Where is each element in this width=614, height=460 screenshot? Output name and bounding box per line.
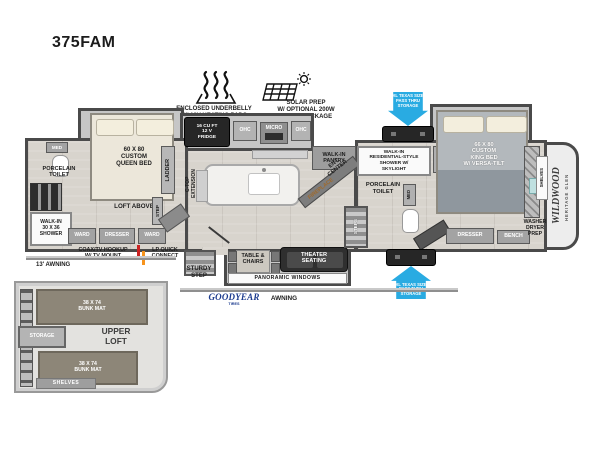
pillow [136, 119, 174, 136]
upper-loft-label: UPPER LOFT [86, 327, 146, 346]
table-chairs-label: TABLE & CHAIRS [236, 253, 270, 265]
countertop-extension [196, 170, 208, 202]
ctop-extension-label: C-TOP EXTENSION [186, 156, 198, 212]
bedroom-steps: STEPS [344, 206, 368, 248]
latch [420, 132, 425, 136]
goodyear-tires-label: TIRES [222, 302, 246, 306]
front-wardrobe [30, 183, 62, 211]
loft-ladder: LADDER [161, 146, 175, 194]
washer-dryer-prep-label: WASHER DRYER PREP [516, 220, 554, 238]
microwave: MICRO [260, 122, 288, 144]
sink [248, 173, 280, 195]
faucet-icon [262, 168, 266, 172]
front-med-cabinet: MED [46, 142, 68, 153]
pillow [486, 116, 527, 133]
pass-thru-arrow-top: XL TEXAS SIZE PASS THRU STORAGE [388, 92, 428, 126]
latch [422, 255, 427, 259]
microwave-door [265, 133, 283, 140]
heating-pads-icon [194, 70, 238, 109]
loft-storage: STORAGE [18, 326, 66, 348]
pass-thru-door-bottom [386, 249, 436, 266]
theater-seating-label: THEATER SEATING [282, 252, 346, 265]
ohc-left: OHC [233, 121, 257, 141]
brand-subtitle: HERITAGE GLEN [565, 158, 570, 236]
rear-toilet-icon [402, 209, 419, 233]
page-title: 375FAM [52, 34, 115, 52]
refrigerator: 16 CU FT 12 V FRIDGE [184, 117, 230, 147]
rear-med-cabinet: MED [403, 184, 416, 206]
rear-shower: WALK-IN RESIDENTIAL-STYLE SHOWER W/ SKYL… [357, 146, 431, 176]
kitchen-counter [252, 150, 308, 159]
bed-foot [438, 170, 526, 212]
king-bed-label: 66 X 80 CUSTOM KING BED W/ VERSA-TILT [438, 142, 530, 168]
pillow [96, 119, 134, 136]
pillow [443, 116, 484, 133]
upper-loft-inset: 38 X 74 BUNK MAT STORAGE UPPER LOFT 38 X… [14, 281, 168, 393]
brand-wordmark: WILDWOOD [551, 150, 563, 242]
kitchen-island [204, 164, 300, 206]
sturdy-step-label: STURDY STEP [176, 266, 222, 280]
goodyear-logo: GOODYEAR [206, 292, 262, 302]
latch [395, 255, 400, 259]
pass-thru-arrow-bottom: XL TEXAS SIZE PASS THRU STORAGE [391, 266, 431, 299]
ward-right: WARD [138, 228, 166, 244]
panoramic-windows: PANORAMIC WINDOWS [228, 273, 347, 284]
chair [271, 251, 280, 262]
rear-shelves: SHELVES [536, 156, 548, 200]
ward-left: WARD [68, 228, 96, 244]
floorplan-diagram: 375FAM ENCLOSED UNDERBELLY W/ 12V HEATIN… [0, 0, 614, 460]
front-dresser: DRESSER [99, 228, 135, 244]
loft-shelves: SHELVES [36, 378, 96, 389]
front-awning-bar [26, 256, 176, 260]
king-bed: 66 X 80 CUSTOM KING BED W/ VERSA-TILT [436, 110, 528, 214]
bunk-mat-top: 38 X 74 BUNK MAT [36, 289, 148, 325]
rear-dresser: DRESSER [446, 228, 494, 244]
front-awning-label: 13' AWNING [36, 262, 92, 269]
pass-thru-door-top [382, 126, 434, 142]
front-toilet-label: PORCELAIN TOILET [28, 166, 90, 179]
front-shower: WALK-IN 30 x 36 SHOWER [30, 212, 72, 246]
main-awning-label: AWNING [264, 295, 304, 302]
ohc-right: OHC [291, 121, 311, 141]
latch [391, 132, 396, 136]
